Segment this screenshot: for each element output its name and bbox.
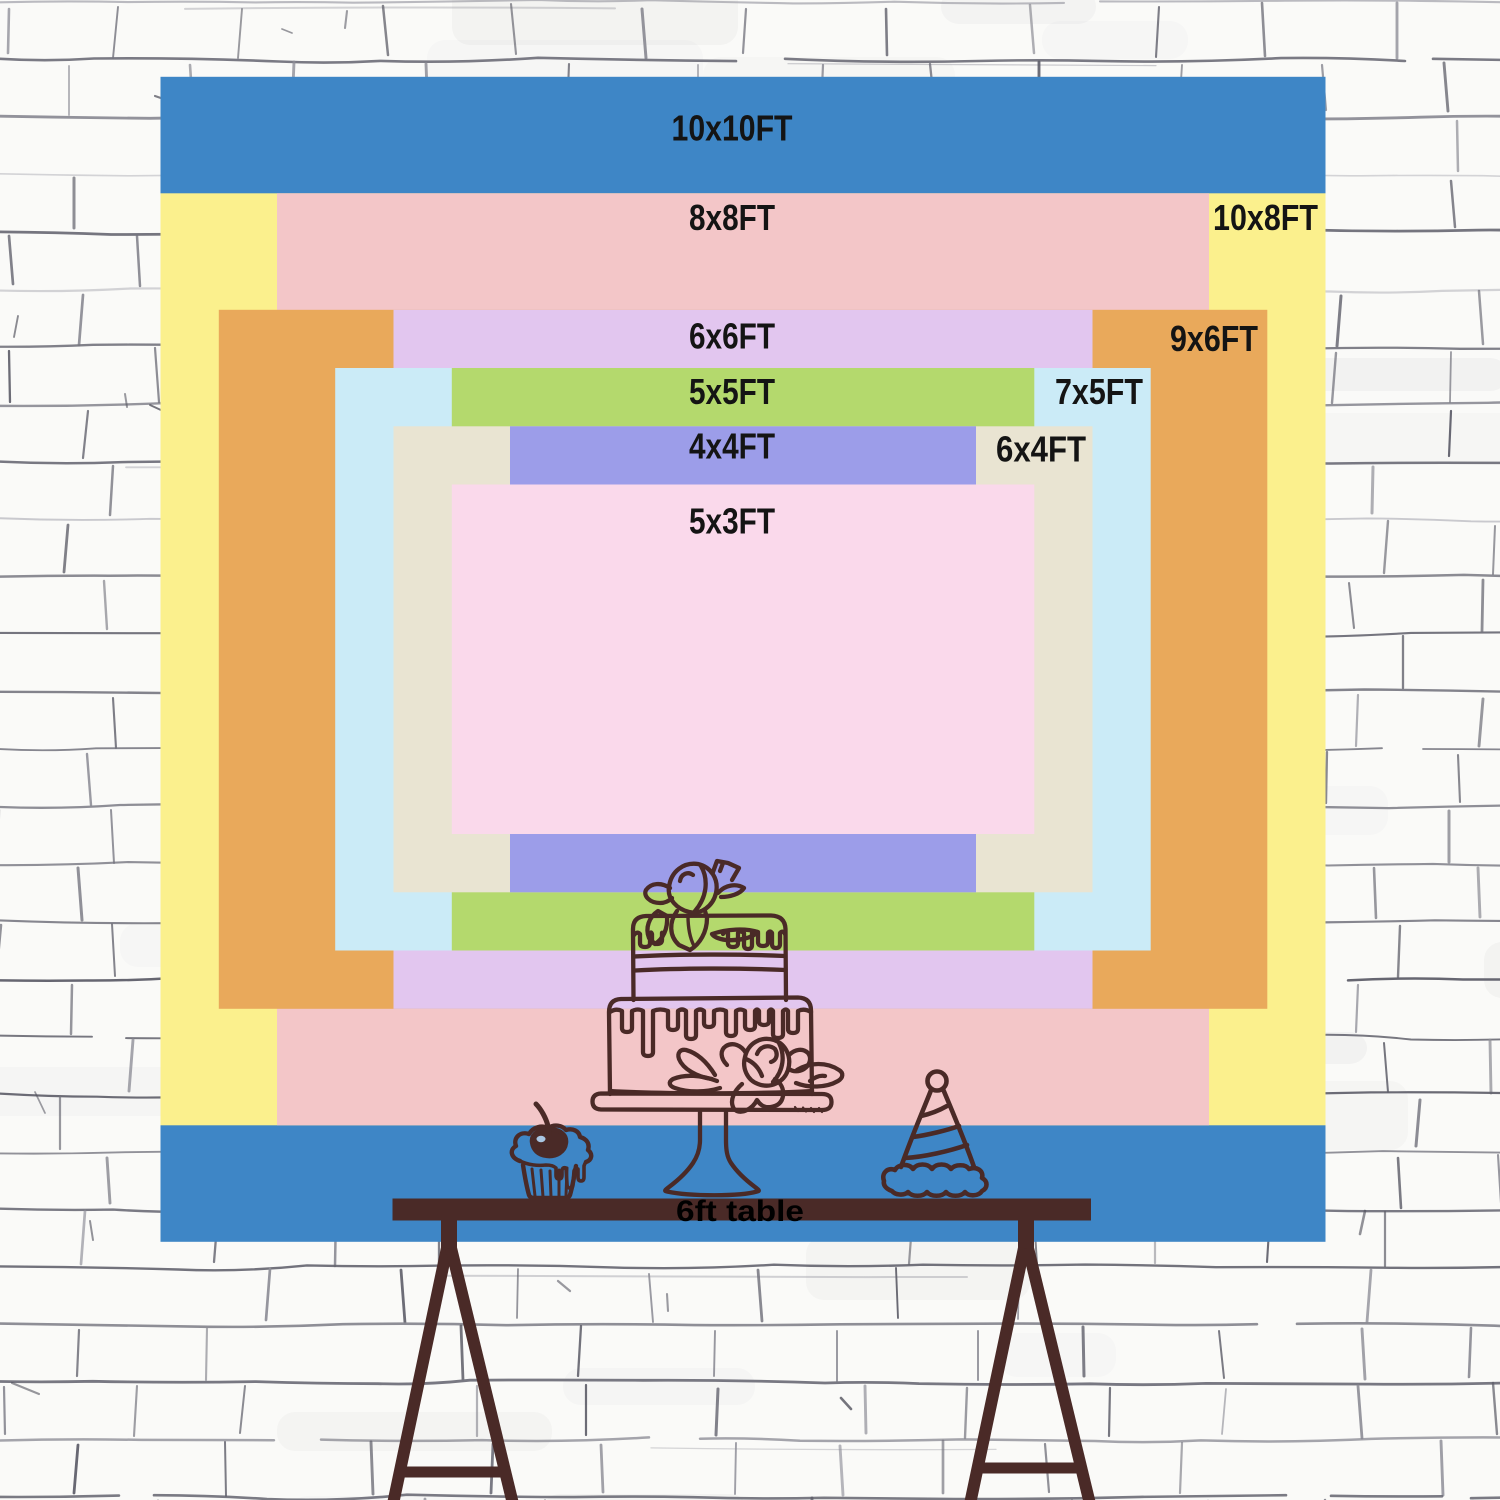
svg-text:9x6FT: 9x6FT bbox=[1170, 318, 1258, 359]
svg-text:10x8FT: 10x8FT bbox=[1213, 197, 1318, 238]
svg-text:7x5FT: 7x5FT bbox=[1055, 371, 1143, 412]
svg-text:4x4FT: 4x4FT bbox=[689, 426, 775, 467]
svg-text:6x4FT: 6x4FT bbox=[996, 429, 1086, 470]
svg-text:5x5FT: 5x5FT bbox=[689, 371, 775, 412]
svg-text:10x10FT: 10x10FT bbox=[672, 108, 793, 149]
svg-text:5x3FT: 5x3FT bbox=[689, 501, 775, 542]
svg-text:8x8FT: 8x8FT bbox=[689, 197, 775, 238]
svg-text:6ft table: 6ft table bbox=[676, 1195, 804, 1228]
svg-text:6x6FT: 6x6FT bbox=[689, 316, 775, 357]
